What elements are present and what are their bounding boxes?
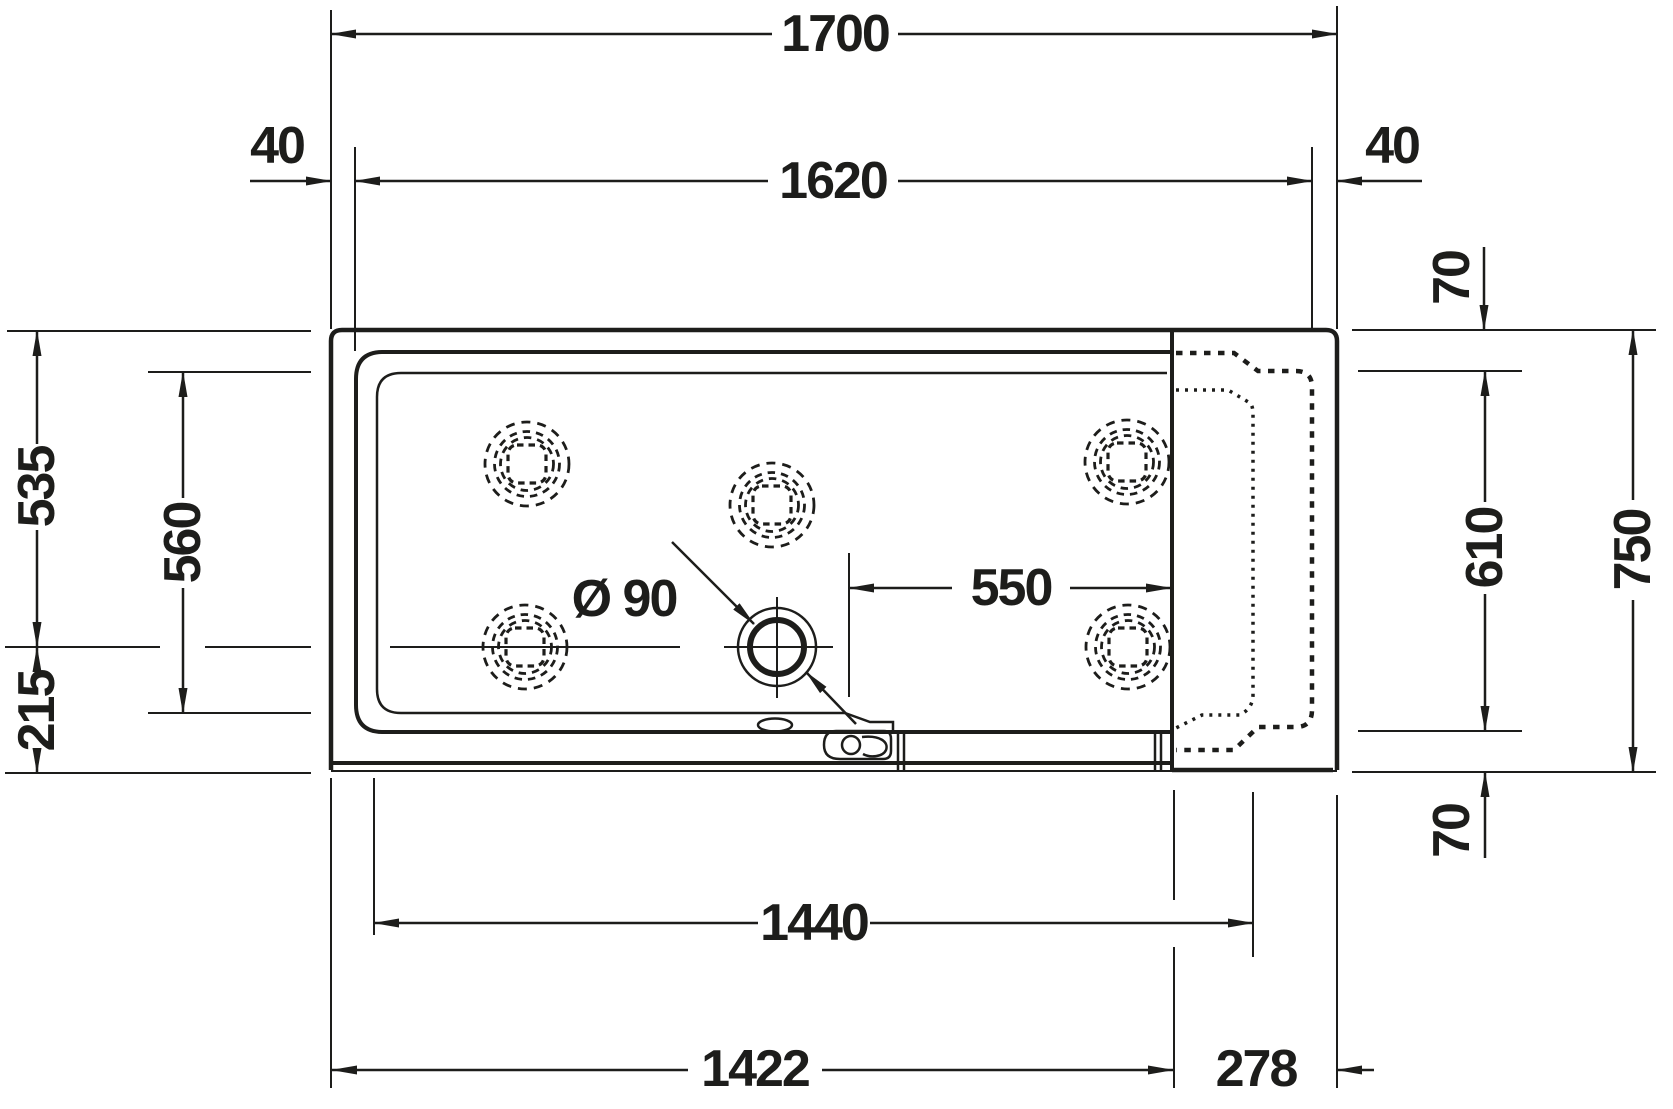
- dim-label-550: 550: [971, 559, 1052, 617]
- door-lock: [824, 731, 891, 759]
- tub-inner-rim: [356, 352, 1171, 732]
- dim-label-560: 560: [154, 503, 212, 584]
- tub-outline: [331, 330, 1337, 771]
- door-lock-lever: [862, 737, 887, 757]
- drain-leader-arrow: [672, 542, 754, 624]
- headrest-outer-dashed: [1176, 353, 1312, 750]
- tub-outer-edge: [331, 330, 1337, 770]
- dim-label-70-bottom: 70: [1423, 804, 1481, 858]
- dim-label-1700: 1700: [781, 5, 889, 63]
- basin-door-step: [845, 713, 893, 731]
- dim-label-1440: 1440: [760, 894, 868, 952]
- dim-label-1422: 1422: [701, 1040, 809, 1098]
- plan-view-drawing: 1700 1620 40 40 535 215 560 70 610 750 7…: [0, 0, 1673, 1109]
- dim-label-40-right: 40: [1365, 117, 1419, 175]
- jet: [485, 422, 569, 506]
- door-lock-pivot: [842, 736, 860, 754]
- headrest-inner-dotted: [1176, 390, 1253, 728]
- dim-label-drain-diameter: Ø 90: [572, 570, 677, 628]
- dim-label-750: 750: [1604, 510, 1662, 591]
- headrest-outline: [1176, 353, 1312, 750]
- dim-label-40-left: 40: [250, 117, 304, 175]
- jet: [1085, 420, 1169, 504]
- dim-label-535: 535: [8, 446, 66, 528]
- dim-label-610: 610: [1456, 508, 1514, 589]
- whirlpool-jets: [483, 420, 1170, 689]
- overflow-slot: [758, 719, 792, 732]
- jet: [1086, 605, 1170, 689]
- dim-label-215: 215: [8, 670, 66, 752]
- bathtub-technical-drawing: 1700 1620 40 40 535 215 560 70 610 750 7…: [0, 0, 1673, 1109]
- dim-label-278: 278: [1216, 1040, 1298, 1098]
- dim-label-1620: 1620: [779, 152, 887, 210]
- jet: [730, 463, 814, 547]
- dimension-labels: 1700 1620 40 40 535 215 560 70 610 750 7…: [8, 5, 1662, 1098]
- dim-label-70-top: 70: [1423, 251, 1481, 305]
